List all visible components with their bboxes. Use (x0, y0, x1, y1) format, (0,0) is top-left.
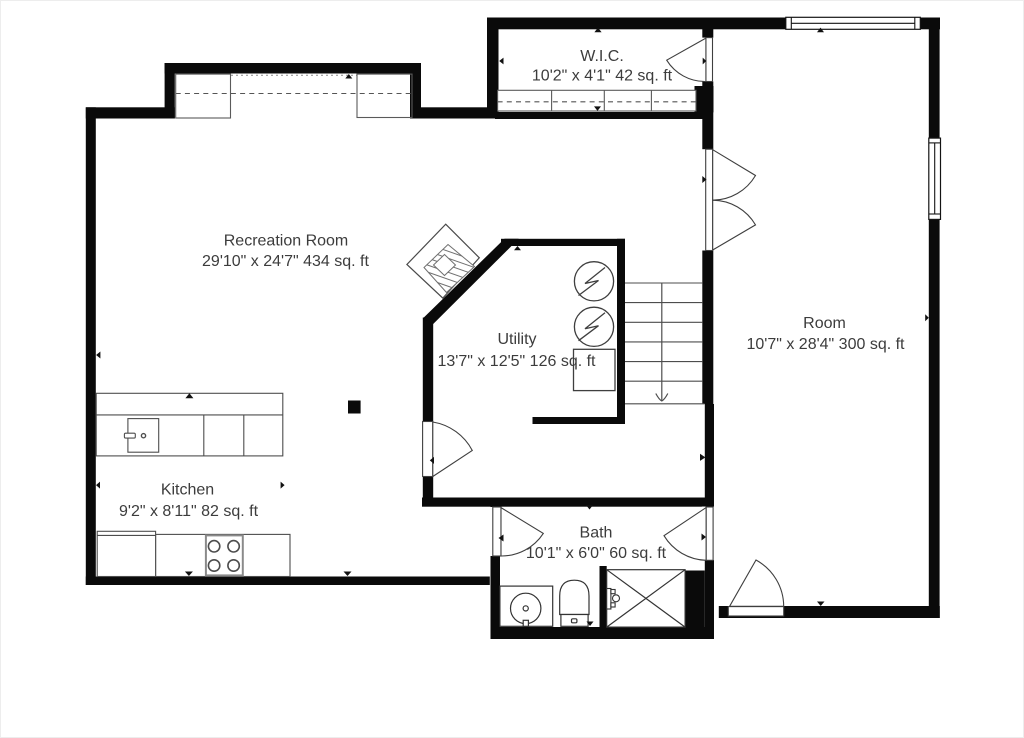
svg-text:Bath: Bath (580, 525, 613, 542)
svg-text:W.I.C.: W.I.C. (580, 48, 624, 65)
svg-text:Kitchen: Kitchen (161, 482, 214, 499)
svg-text:9'2" x 8'11" 82 sq. ft: 9'2" x 8'11" 82 sq. ft (119, 503, 259, 520)
svg-text:29'10" x 24'7" 434 sq. ft: 29'10" x 24'7" 434 sq. ft (202, 253, 369, 270)
svg-text:13'7" x 12'5" 126 sq. ft: 13'7" x 12'5" 126 sq. ft (437, 353, 596, 370)
svg-text:10'2" x 4'1" 42 sq. ft: 10'2" x 4'1" 42 sq. ft (532, 68, 673, 85)
svg-text:Recreation Room: Recreation Room (224, 233, 349, 250)
svg-text:10'1" x 6'0" 60 sq. ft: 10'1" x 6'0" 60 sq. ft (526, 545, 667, 562)
svg-text:Utility: Utility (497, 331, 536, 348)
svg-text:10'7" x 28'4" 300 sq. ft: 10'7" x 28'4" 300 sq. ft (746, 336, 905, 353)
svg-text:Room: Room (803, 315, 846, 332)
